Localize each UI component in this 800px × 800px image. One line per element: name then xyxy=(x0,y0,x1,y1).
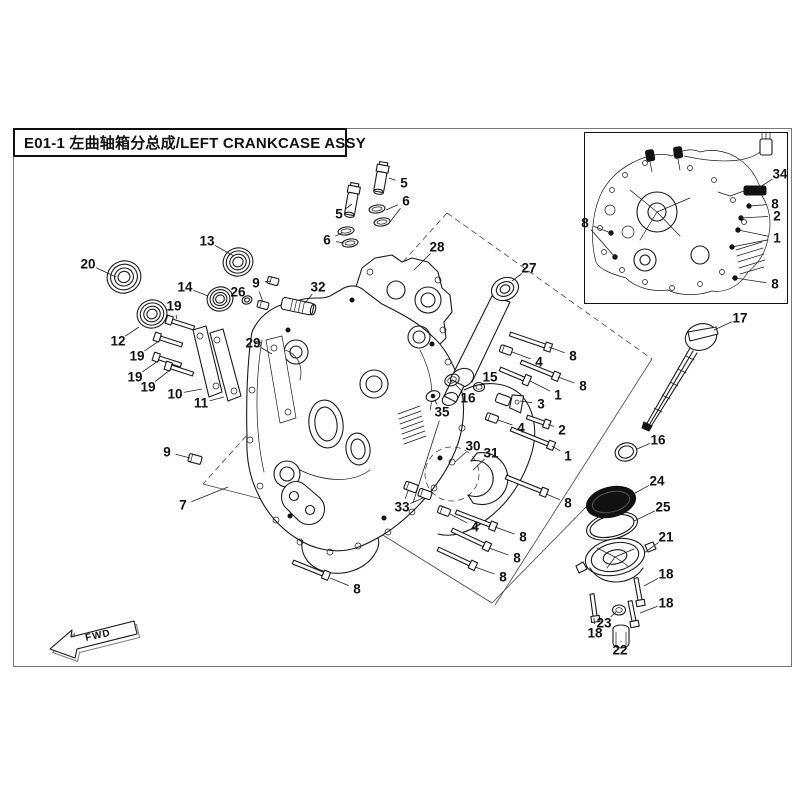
part-number-label: 8 xyxy=(569,349,577,364)
part-number-label: 25 xyxy=(655,500,671,515)
callout-8: 8 xyxy=(330,578,361,597)
part-number-label: 32 xyxy=(310,280,325,295)
callout-11: 11 xyxy=(194,396,224,411)
part-number-label: 8 xyxy=(564,496,572,511)
fwd-arrow: FWD xyxy=(50,621,140,662)
callout-8: 8 xyxy=(558,377,587,394)
part-number-label: 2 xyxy=(773,209,781,224)
part-number-label: 11 xyxy=(194,396,209,411)
oil-nozzle-3-drawing xyxy=(494,387,526,413)
leader-line xyxy=(530,381,550,391)
callout-8: 8 xyxy=(546,494,572,511)
part-number-label: 3 xyxy=(537,397,545,412)
part-number-label: 7 xyxy=(179,498,187,513)
part-number-label: 1 xyxy=(564,449,572,464)
part-number-label: 8 xyxy=(581,216,589,231)
part-number-label: 8 xyxy=(519,530,527,545)
leader-line xyxy=(498,420,513,425)
leader-line xyxy=(495,527,515,534)
leader-line xyxy=(637,444,650,450)
oring-16b-drawing xyxy=(613,440,639,463)
callout-24: 24 xyxy=(628,474,665,497)
callout-14: 14 xyxy=(177,280,208,296)
callout-1: 1 xyxy=(530,381,562,403)
leader-line xyxy=(546,494,560,500)
part-number-label: 20 xyxy=(80,257,95,272)
plug-5-right-drawing xyxy=(372,161,389,195)
callout-6: 6 xyxy=(386,194,410,222)
part-number-label: 14 xyxy=(177,280,193,295)
parts-diagram-page: E01-1 左曲轴箱分总成/LEFT CRANKCASE ASSY xyxy=(0,0,800,800)
part-number-label: 1 xyxy=(554,388,562,403)
plug-5-left-drawing xyxy=(343,182,361,218)
leader-line xyxy=(389,178,396,180)
leader-line xyxy=(386,205,398,210)
part-number-label: 16 xyxy=(460,391,476,406)
leader-line xyxy=(330,578,349,586)
leader-line xyxy=(126,327,140,336)
part-number-label: 24 xyxy=(649,474,665,489)
callout-8: 8 xyxy=(495,527,527,545)
leader-line xyxy=(644,578,658,586)
part-number-label: 33 xyxy=(394,500,410,515)
callout-16: 16 xyxy=(637,433,666,449)
callout-2: 2 xyxy=(548,423,566,438)
strainer-cap-21-drawing xyxy=(576,533,656,582)
part-number-label: 8 xyxy=(579,379,587,394)
part-number-label: 16 xyxy=(650,433,666,448)
part-number-label: 1 xyxy=(773,231,781,246)
bearing-13-drawing xyxy=(219,244,257,281)
callout-8: 8 xyxy=(489,548,521,566)
leader-line xyxy=(558,377,575,383)
leader-line xyxy=(184,389,202,392)
callout-34: 34 xyxy=(757,167,788,189)
part-number-label: 18 xyxy=(587,626,603,641)
part-number-label: 19 xyxy=(129,349,144,364)
inset-engine-drawing xyxy=(593,132,772,295)
leader-line xyxy=(475,567,495,574)
callout-12: 12 xyxy=(110,327,139,349)
callout-5: 5 xyxy=(389,176,408,191)
part-number-label: 8 xyxy=(771,277,779,292)
part-number-label: 5 xyxy=(400,176,408,191)
callout-22: 22 xyxy=(612,641,627,658)
page-title: E01-1 左曲轴箱分总成/LEFT CRANKCASE ASSY xyxy=(24,132,366,153)
part-number-label: 10 xyxy=(167,387,182,402)
callout-8: 8 xyxy=(549,347,577,364)
callout-15: 15 xyxy=(481,370,498,386)
part-number-label: 9 xyxy=(163,445,171,460)
part-number-label: 17 xyxy=(732,311,747,326)
part-number-label: 19 xyxy=(140,380,155,395)
leader-line xyxy=(193,290,208,296)
leader-line xyxy=(142,361,158,372)
part-number-label: 4 xyxy=(471,520,479,535)
part-number-label: 22 xyxy=(612,643,627,658)
part-number-label: 29 xyxy=(245,336,260,351)
part-number-label: 6 xyxy=(402,194,410,209)
leader-line xyxy=(210,397,224,401)
part-number-label: 13 xyxy=(199,234,215,249)
callout-7: 7 xyxy=(179,487,228,513)
part-number-label: 8 xyxy=(499,570,507,585)
part-number-label: 12 xyxy=(110,334,125,349)
part-number-label: 31 xyxy=(483,446,499,461)
part-number-label: 18 xyxy=(658,567,674,582)
part-number-label: 19 xyxy=(166,299,181,314)
leader-line xyxy=(144,341,159,351)
callout-25: 25 xyxy=(634,500,671,521)
leader-line xyxy=(640,606,658,613)
part-number-label: 8 xyxy=(353,582,361,597)
bearing-20-drawing xyxy=(103,256,146,298)
callout-8: 8 xyxy=(475,567,507,585)
leader-line xyxy=(714,322,732,330)
leader-line xyxy=(512,274,522,282)
leader-line xyxy=(191,487,228,502)
leader-line xyxy=(549,347,565,353)
part-number-label: 35 xyxy=(434,405,450,420)
part-number-label: 9 xyxy=(252,276,260,291)
part-number-label: 30 xyxy=(465,439,480,454)
part-number-label: 2 xyxy=(558,423,566,438)
leader-line xyxy=(489,548,509,555)
part-number-label: 27 xyxy=(521,261,536,276)
callout-27: 27 xyxy=(512,261,537,281)
leader-line xyxy=(390,208,401,222)
part-number-label: 4 xyxy=(517,421,525,436)
callout-26: 26 xyxy=(230,285,246,300)
callout-8: 8 xyxy=(735,277,779,292)
callout-17: 17 xyxy=(714,311,748,330)
part-number-label: 26 xyxy=(230,285,246,300)
dipstick-17-drawing xyxy=(642,319,720,431)
callout-18: 18 xyxy=(644,567,674,586)
title-block: E01-1 左曲轴箱分总成/LEFT CRANKCASE ASSY xyxy=(13,128,347,157)
part-number-label: 15 xyxy=(482,370,498,385)
leader-line xyxy=(634,511,655,521)
leader-line xyxy=(176,315,177,319)
callout-19: 19 xyxy=(140,370,170,395)
part-number-label: 34 xyxy=(772,167,788,182)
part-number-label: 28 xyxy=(429,240,445,255)
part-number-label: 6 xyxy=(323,233,331,248)
part-number-label: 4 xyxy=(535,355,543,370)
callout-9: 9 xyxy=(163,445,190,460)
leader-line xyxy=(512,352,531,359)
part-number-label: 21 xyxy=(658,530,674,545)
part-number-label: 18 xyxy=(658,596,674,611)
part-number-label: 5 xyxy=(335,207,343,222)
diagram-canvas: FWD 201356562827329261419121919191011299… xyxy=(0,0,800,800)
part-number-label: 8 xyxy=(513,551,521,566)
leader-line xyxy=(155,370,170,382)
callout-1: 1 xyxy=(552,446,572,464)
callout-21: 21 xyxy=(644,530,674,553)
leader-line xyxy=(176,454,190,458)
